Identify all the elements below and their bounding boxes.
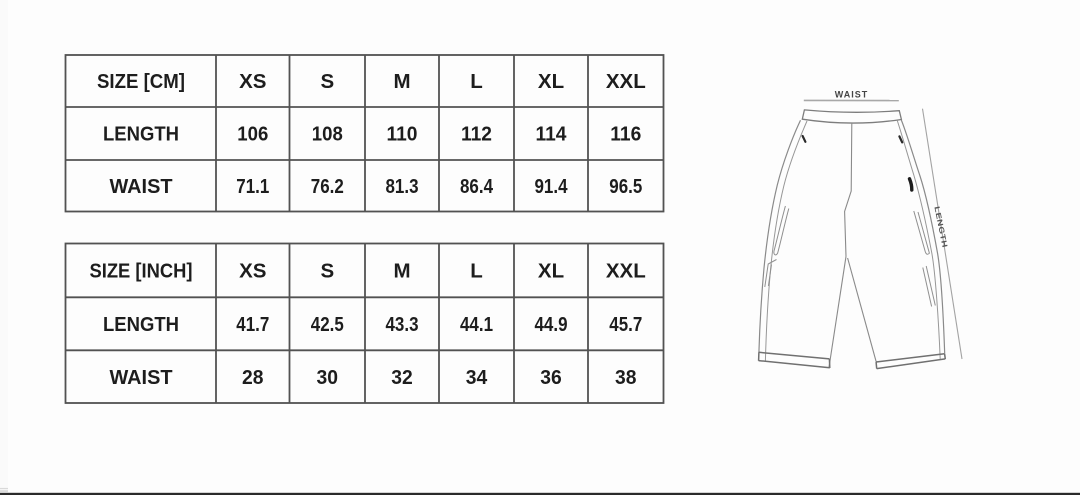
- svg-text:LENGTH: LENGTH: [103, 313, 179, 336]
- svg-text:106: 106: [237, 123, 268, 146]
- svg-text:XL: XL: [538, 70, 564, 93]
- svg-text:114: 114: [536, 123, 568, 146]
- svg-text:WAIST: WAIST: [110, 175, 173, 198]
- svg-text:SIZE [INCH]: SIZE [INCH]: [90, 260, 193, 283]
- svg-text:71.1: 71.1: [236, 175, 269, 198]
- svg-text:L: L: [470, 70, 483, 93]
- svg-text:112: 112: [461, 123, 492, 146]
- svg-text:42.5: 42.5: [311, 313, 344, 336]
- svg-text:44.1: 44.1: [460, 313, 493, 336]
- svg-text:SIZE [CM]: SIZE [CM]: [97, 70, 185, 93]
- svg-text:WAIST: WAIST: [835, 89, 869, 99]
- svg-text:S: S: [320, 260, 334, 283]
- svg-text:96.5: 96.5: [609, 175, 642, 198]
- svg-text:L: L: [470, 260, 483, 283]
- svg-text:S: S: [320, 70, 334, 93]
- svg-text:30: 30: [317, 366, 339, 389]
- svg-text:XXL: XXL: [606, 260, 646, 283]
- svg-text:86.4: 86.4: [460, 175, 493, 198]
- svg-text:M: M: [393, 70, 410, 93]
- svg-text:110: 110: [387, 123, 418, 146]
- svg-text:44.9: 44.9: [535, 313, 568, 336]
- svg-text:M: M: [393, 260, 410, 283]
- svg-text:XXL: XXL: [606, 70, 646, 93]
- svg-text:34: 34: [466, 366, 488, 389]
- svg-text:XL: XL: [538, 260, 564, 283]
- svg-text:81.3: 81.3: [386, 175, 419, 198]
- svg-text:36: 36: [540, 366, 562, 389]
- svg-text:XS: XS: [239, 260, 266, 283]
- svg-text:91.4: 91.4: [535, 175, 568, 198]
- svg-text:XS: XS: [239, 70, 266, 93]
- svg-text:32: 32: [391, 366, 413, 389]
- svg-text:LENGTH: LENGTH: [103, 123, 179, 146]
- svg-text:43.3: 43.3: [386, 313, 419, 336]
- svg-text:116: 116: [610, 123, 641, 146]
- svg-text:WAIST: WAIST: [110, 366, 173, 389]
- svg-text:41.7: 41.7: [236, 313, 269, 336]
- svg-text:45.7: 45.7: [609, 313, 642, 336]
- svg-text:38: 38: [615, 366, 637, 389]
- svg-text:108: 108: [312, 123, 343, 146]
- svg-text:76.2: 76.2: [311, 175, 344, 198]
- svg-text:28: 28: [242, 366, 264, 389]
